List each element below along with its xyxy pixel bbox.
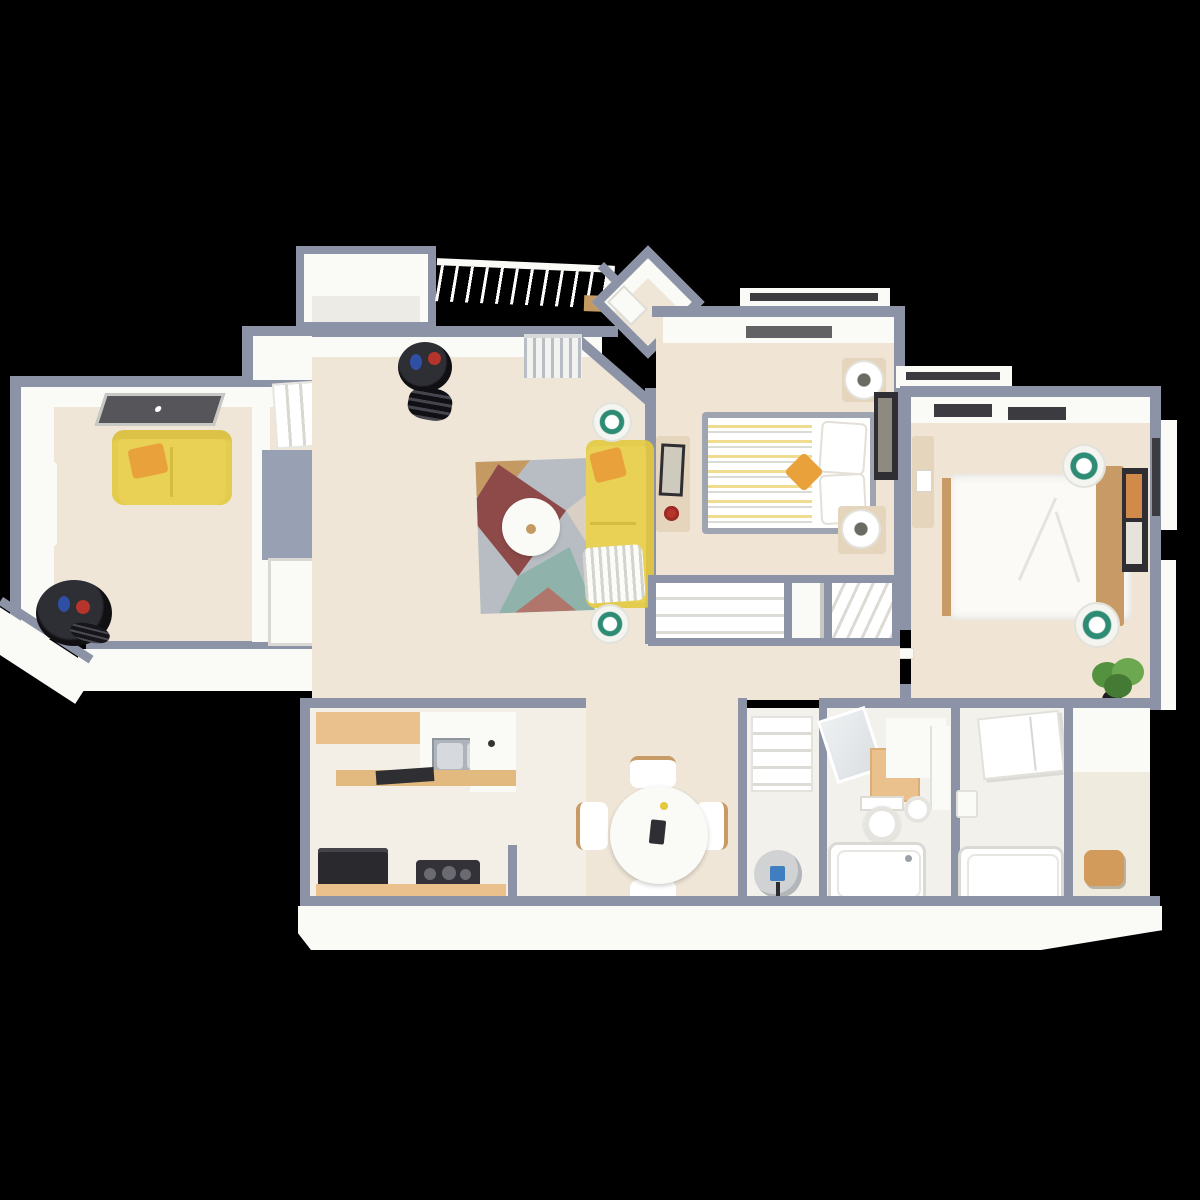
bedroom2-wall-art-inner-top <box>1126 474 1142 518</box>
kitchen-faucet-dot <box>488 740 495 747</box>
sink-basin-left <box>437 743 463 769</box>
coffee-table-decor <box>526 524 536 534</box>
bedroom1-wall-art-inner <box>878 398 892 472</box>
bath1-bathtub <box>828 842 926 904</box>
bedroom1-dresser-frame <box>659 443 686 496</box>
utility-west-wall <box>738 698 747 910</box>
radiator <box>524 334 582 378</box>
bedroom2-window-slot-1 <box>934 404 992 417</box>
jog-corner <box>253 336 313 380</box>
dining-table <box>610 786 708 884</box>
closet-divider-1 <box>648 575 656 646</box>
den-drum-rings <box>68 619 111 646</box>
bath2-sink <box>956 790 978 818</box>
floor-lamp-top <box>594 404 630 440</box>
bedroom2-east-wall <box>1150 386 1161 710</box>
balcony <box>436 254 614 334</box>
bath2-tub-inner <box>967 854 1059 902</box>
bath1-tub-drain <box>905 855 912 862</box>
bedroom2-duvet-crease-1 <box>1018 497 1057 580</box>
dining-table-lemon <box>660 802 668 810</box>
den-window-panel <box>95 393 226 426</box>
bedroom1-window-inner <box>746 326 832 338</box>
south-outer-wall-face <box>298 906 1162 950</box>
cylinder-decor-blue <box>410 354 422 370</box>
bedroom2-dresser <box>912 436 934 528</box>
den-loveseat <box>112 430 232 505</box>
burner-2 <box>442 866 456 880</box>
sofa-cushion-split <box>590 522 636 525</box>
south-outer-wall-edge <box>300 896 1160 907</box>
bedroom2-wall-art <box>1122 468 1148 572</box>
bedroom2-duvet-crease-2 <box>1055 511 1081 582</box>
bathrooms-north-wall <box>819 698 1160 708</box>
den-drum-table <box>36 580 112 646</box>
utility-shelving <box>751 716 813 792</box>
bedroom2-lamp-table-bottom <box>1076 604 1118 646</box>
bedroom2-headboard <box>1096 466 1124 626</box>
cylinder-storage-rack <box>398 342 452 392</box>
closet-divider-2 <box>784 575 792 646</box>
cylinder-decor-red <box>428 352 441 365</box>
bath2-wall-cabinet <box>977 710 1065 780</box>
storage-closet-bump <box>296 246 436 330</box>
bedroom1-north-wall <box>652 306 904 317</box>
den-window-glint <box>154 406 162 412</box>
water-heater <box>754 850 802 898</box>
bedroom2-bed <box>948 474 1132 620</box>
bedroom2-east-window-slot <box>1152 438 1160 516</box>
walkin-upper-shading <box>1073 708 1150 772</box>
bath2-cabinet-split <box>1029 717 1037 771</box>
kitchen-west-wall <box>300 698 310 910</box>
burner-1 <box>424 868 436 880</box>
closet-row-bottom-wall <box>648 638 900 646</box>
bedroom2-east-window-bay <box>1161 420 1177 530</box>
bath1-toilet-bowl <box>864 806 900 842</box>
bath1-shelf-column <box>930 726 950 810</box>
den-drum-decor-blue <box>58 596 70 612</box>
den-drum-decor-red <box>76 600 90 614</box>
den-floor-window-light <box>27 462 57 546</box>
linen-shelves <box>832 583 892 638</box>
bedroom1-dresser <box>656 436 690 532</box>
bedroom2-bay-window-slot <box>906 372 1000 380</box>
bedroom1-dresser-red-bowl <box>664 506 679 521</box>
water-heater-panel <box>770 866 785 881</box>
closet-west-wall <box>1064 698 1073 910</box>
bath1-sink-round <box>904 796 931 823</box>
sofa-knit-throw <box>582 544 646 604</box>
closet-divider-3 <box>824 575 832 646</box>
closet-divider-4 <box>892 575 900 646</box>
bedroom2-west-wall-upper <box>900 386 911 630</box>
bedroom2-wall-art-inner-bottom <box>1126 522 1142 564</box>
floor-plan-render <box>0 0 1200 1200</box>
plant-foliage-3 <box>1104 674 1132 698</box>
jog-wall-vertical <box>242 328 253 386</box>
burner-3 <box>460 869 471 880</box>
bedroom1-lamp-bottom <box>843 511 879 547</box>
dining-chair-top <box>630 756 676 788</box>
bedroom2-window-slot-2 <box>1008 407 1066 420</box>
sofa-orange-pillow <box>589 447 627 484</box>
dining-chair-left <box>576 802 608 850</box>
bedroom1-window-slot <box>750 293 878 301</box>
closet-wide-interior <box>656 583 784 638</box>
den-south-wall-outer-face <box>78 649 316 691</box>
storage-closet-shading <box>312 296 420 322</box>
bedroom2-lamp-table-top <box>1064 446 1104 486</box>
kitchen-north-wall <box>303 698 595 708</box>
east-outer-wall-face <box>1161 560 1176 710</box>
coffee-table <box>502 498 560 556</box>
bedroom2-north-wall <box>900 386 1160 397</box>
hall-floor <box>648 644 900 700</box>
walkin-stool <box>1084 850 1124 886</box>
bedroom1-pillow-1 <box>818 420 868 475</box>
living-sofa <box>586 440 654 608</box>
dining-table-phone <box>649 819 666 844</box>
bedroom2-bed-rail-left <box>942 478 951 616</box>
closet-narrow-interior <box>792 583 824 638</box>
bedroom2-dresser-decor <box>916 470 932 492</box>
den-west-wall <box>10 376 21 640</box>
den-loveseat-cushion-split <box>170 447 173 497</box>
floor-lamp-bottom <box>592 606 628 642</box>
closet-row-top-wall <box>648 575 900 583</box>
den-orange-pillow <box>127 443 168 480</box>
bedroom1-wall-art <box>874 392 898 480</box>
